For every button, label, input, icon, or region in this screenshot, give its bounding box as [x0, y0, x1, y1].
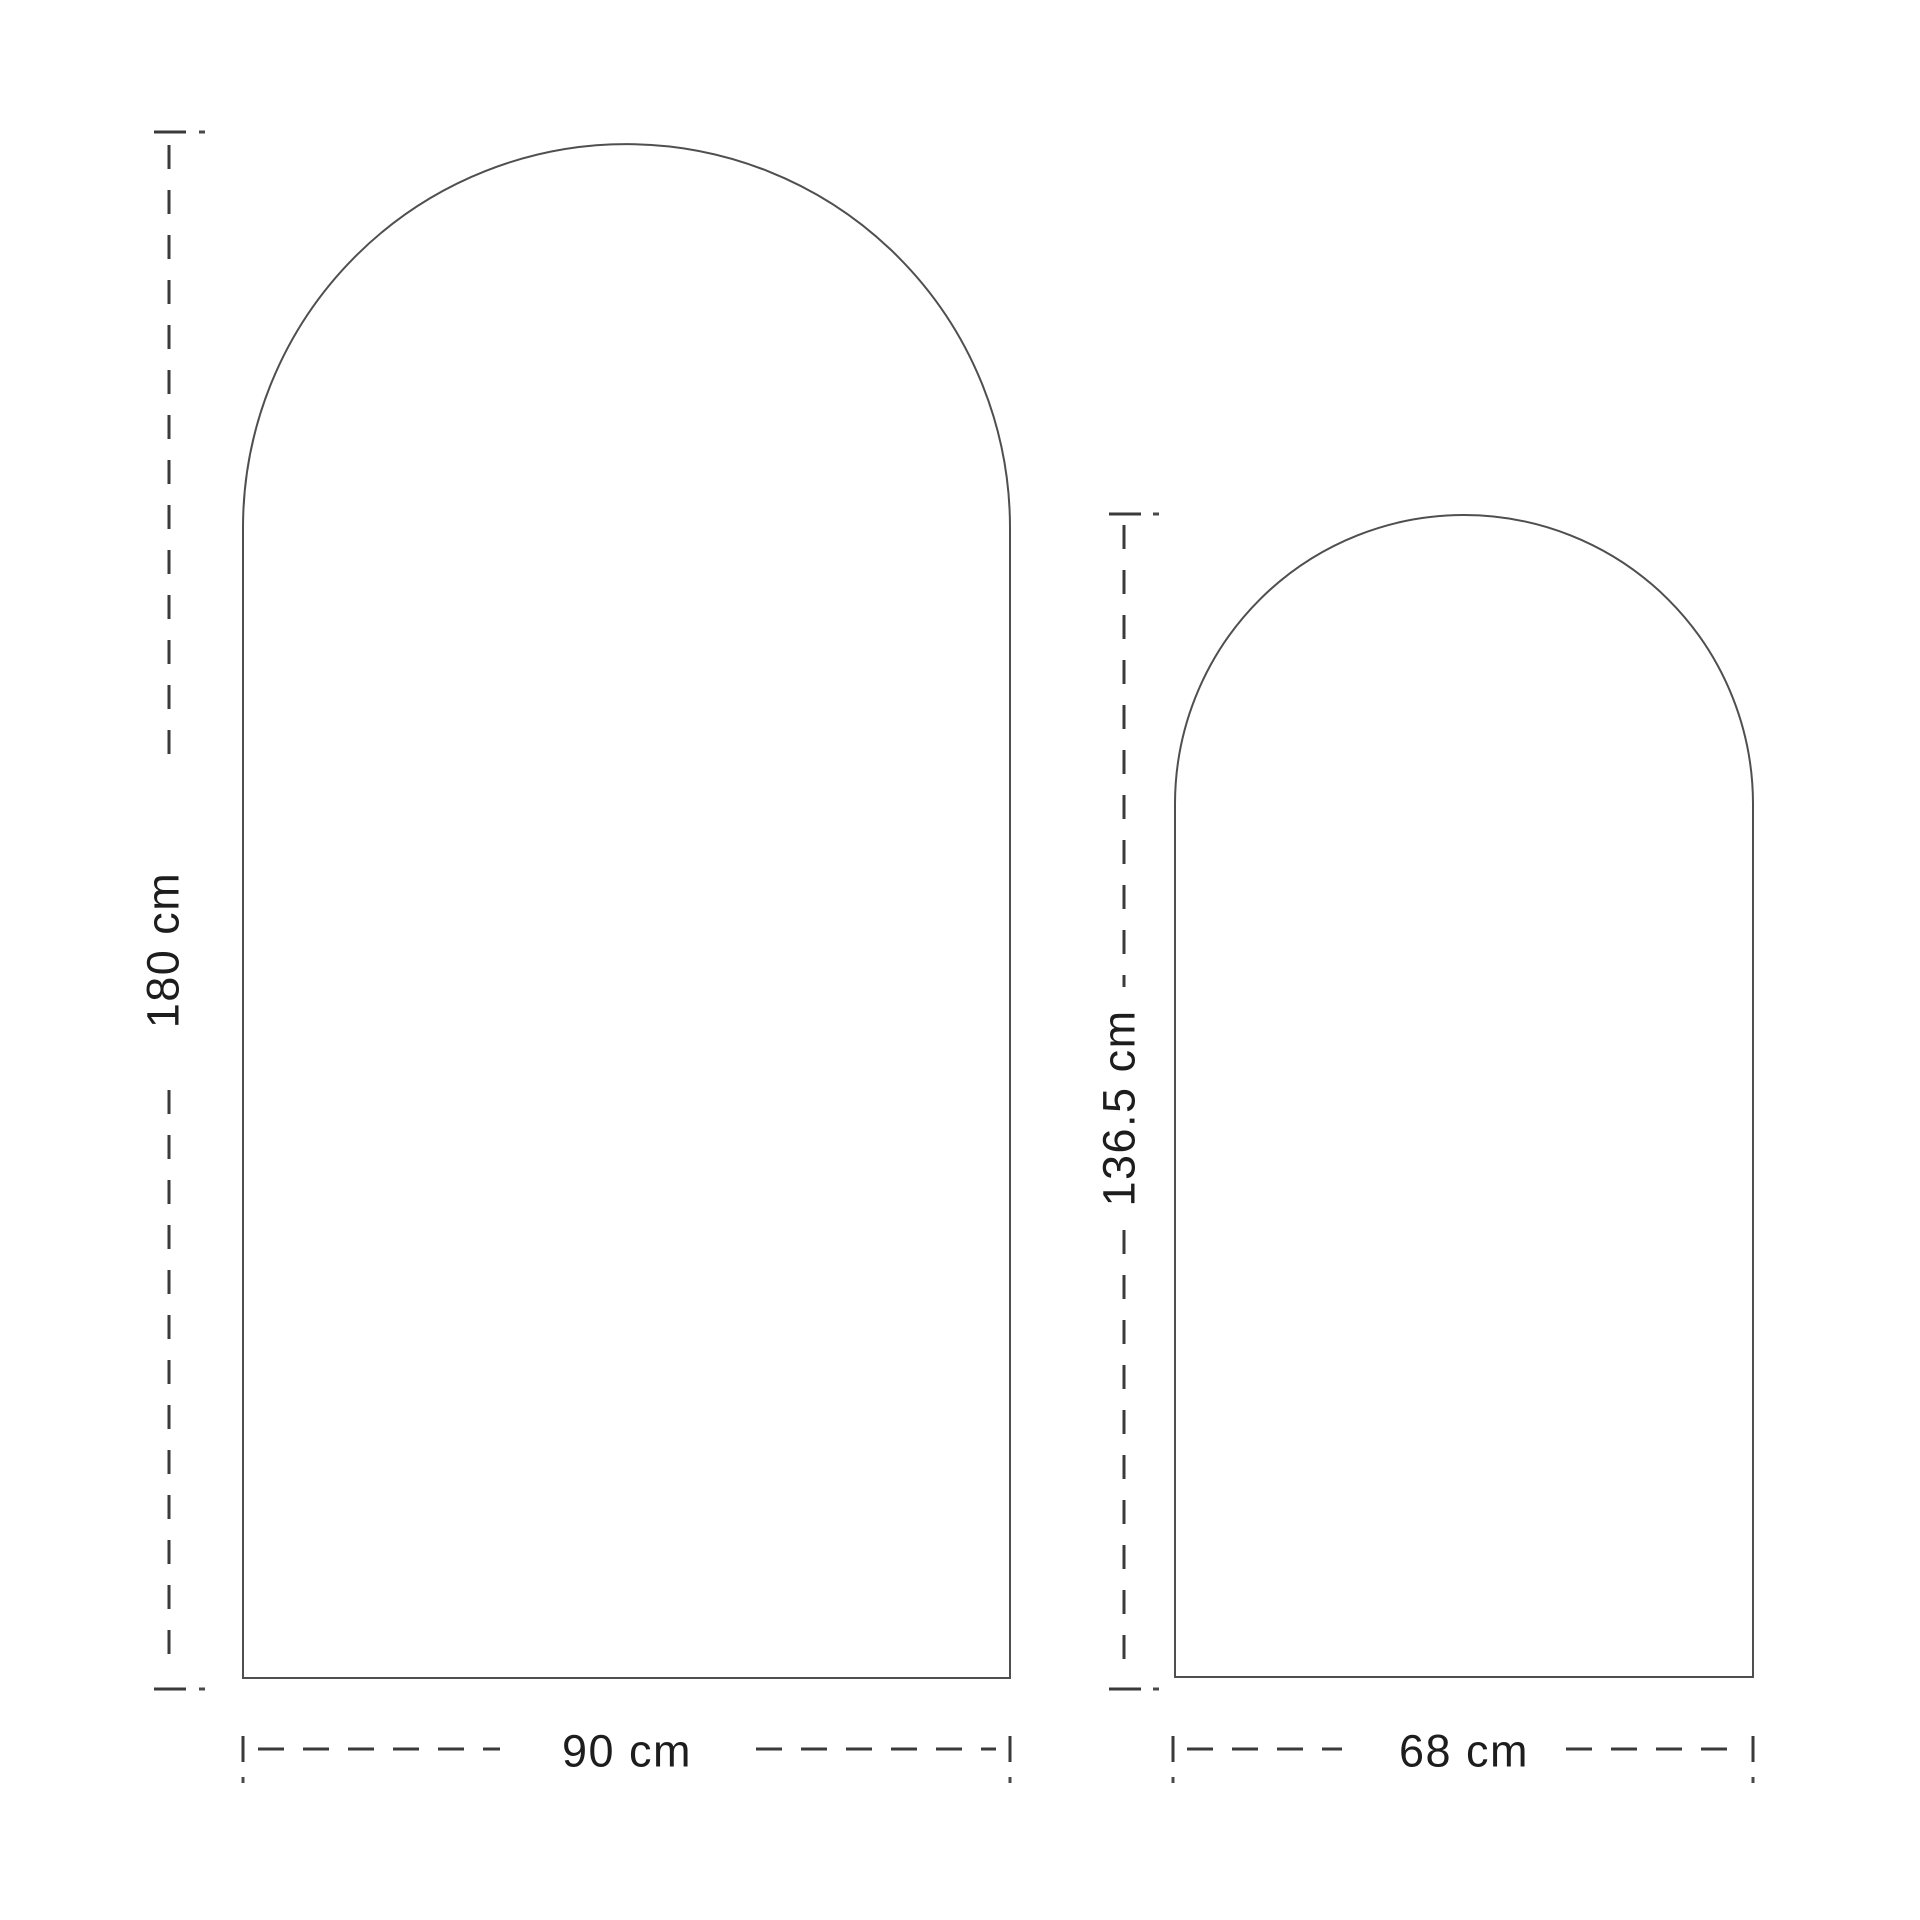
dimension-drawing-svg: 180 cm 136.5 cm 90 cm — [0, 0, 1920, 1920]
small-height-dim-label: 136.5 cm — [1094, 1009, 1145, 1206]
large-arch-outline — [243, 144, 1010, 1678]
large-arch-height-dimension: 180 cm — [138, 132, 206, 1689]
large-height-dim-label: 180 cm — [138, 872, 189, 1029]
large-width-dim-label: 90 cm — [562, 1726, 692, 1777]
small-arch — [1175, 515, 1753, 1677]
large-arch-width-dimension: 90 cm — [243, 1726, 1010, 1784]
small-width-dim-label: 68 cm — [1399, 1726, 1529, 1777]
diagram-canvas: 180 cm 136.5 cm 90 cm — [0, 0, 1920, 1920]
small-arch-height-dimension: 136.5 cm — [1094, 514, 1160, 1689]
small-arch-outline — [1175, 515, 1753, 1677]
small-arch-width-dimension: 68 cm — [1173, 1726, 1753, 1784]
large-arch — [243, 144, 1010, 1678]
